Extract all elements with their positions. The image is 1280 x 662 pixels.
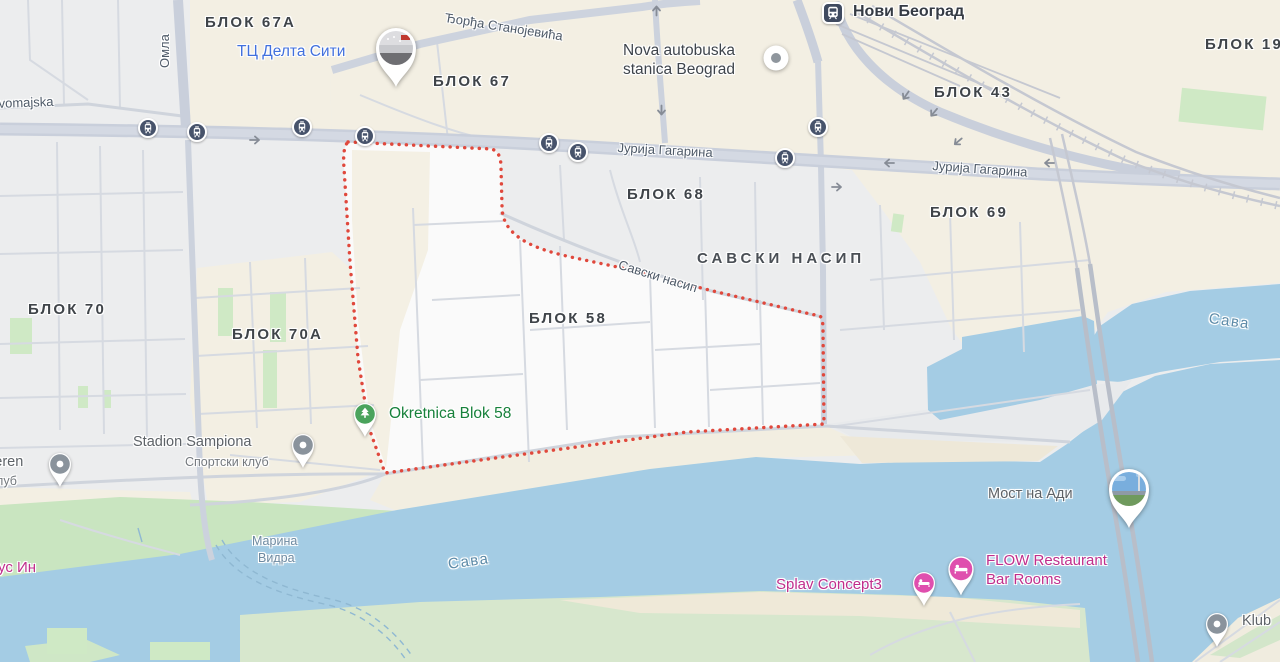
label-blok-43: БЛОК 43	[934, 84, 1012, 101]
bus-stop-icon[interactable]	[292, 117, 312, 137]
poi-bus-station-line2[interactable]: stanica Beograd	[623, 61, 735, 79]
label-blok-70: БЛОК 70	[28, 301, 106, 318]
bus-station-dot-icon[interactable]	[762, 44, 790, 72]
road-arrow	[831, 182, 844, 192]
label-blok-19: БЛОК 19	[1205, 36, 1280, 53]
street-omladinskih: Омла	[157, 34, 172, 68]
bus-stop-icon[interactable]	[355, 126, 375, 146]
street-savski-nasip: Савски насип	[617, 257, 700, 295]
poi-most-na-adi[interactable]: Мост на Ади	[988, 486, 1073, 502]
poi-splav-concept3[interactable]: Splav Concept3	[776, 576, 882, 593]
bus-stop-icon[interactable]	[775, 148, 795, 168]
street-jurija-gagarina-1: Јурија Гагарина	[617, 140, 713, 160]
bus-stop-icon[interactable]	[187, 122, 207, 142]
bus-stop-icon[interactable]	[568, 142, 588, 162]
road-arrow	[656, 105, 666, 118]
road-arrow	[651, 4, 661, 17]
label-blok-68: БЛОК 68	[627, 186, 705, 203]
label-blok-70a: БЛОК 70А	[232, 326, 323, 343]
bus-stop-icon[interactable]	[138, 118, 158, 138]
poi-novi-beograd-station[interactable]: Нови Београд	[853, 3, 964, 21]
road-arrow	[949, 134, 965, 150]
water-marina-vidra-2: Видра	[258, 551, 295, 565]
water-marina-vidra-1: Марина	[252, 534, 297, 548]
poi-flow-line2[interactable]: Bar Rooms	[986, 571, 1061, 588]
label-blok-58: БЛОК 58	[529, 310, 607, 327]
poi-stadion-sampiona[interactable]: Stadion Sampiona	[133, 434, 252, 450]
poi-klub[interactable]: Klub	[1242, 613, 1271, 629]
poi-stadion-sub: Спортски клуб	[185, 455, 269, 469]
splav-bed-pin[interactable]	[909, 568, 939, 608]
klub-pin[interactable]	[1202, 609, 1232, 649]
poi-teren-sub: а клуб	[0, 474, 17, 488]
most-na-adi-photo-pin[interactable]	[1103, 468, 1155, 530]
stadion-pin[interactable]	[288, 430, 318, 470]
poi-okretnica-blok-58[interactable]: Okretnica Blok 58	[389, 405, 511, 423]
bus-stop-icon[interactable]	[539, 133, 559, 153]
road-arrow	[897, 88, 913, 104]
street-prvomajska: rvomajska	[0, 94, 54, 111]
road-arrow	[249, 135, 262, 145]
road-arrow	[882, 158, 895, 168]
poi-flow-line1[interactable]: FLOW Restaurant	[986, 552, 1107, 569]
train-station-icon[interactable]	[822, 2, 844, 24]
road-arrow	[1042, 158, 1055, 168]
map-canvas[interactable]: БЛОК 67АБЛОК 67БЛОК 43БЛОК 19БЛОК 68БЛОК…	[0, 0, 1280, 662]
map-overlay: БЛОК 67АБЛОК 67БЛОК 43БЛОК 19БЛОК 68БЛОК…	[0, 0, 1280, 662]
poi-bus-station-line1[interactable]: Nova autobuska	[623, 42, 735, 60]
water-sava-arm: Сава	[1208, 310, 1251, 333]
poi-us-in[interactable]: ус Ин	[0, 559, 36, 576]
street-djordja-stanojevica: Ђорђа Станојевића	[444, 10, 564, 43]
delta-city-photo-pin[interactable]	[370, 27, 422, 89]
poi-delta-city[interactable]: ТЦ Делта Сити	[237, 43, 345, 61]
street-jurija-gagarina-2: Јурија Гагарина	[932, 158, 1028, 180]
flow-bed-pin[interactable]	[944, 552, 979, 598]
label-savski-nasip-area: САВСКИ НАСИП	[697, 250, 865, 267]
label-blok-67: БЛОК 67	[433, 73, 511, 90]
water-sava-main: Сава	[447, 550, 490, 573]
label-blok-69: БЛОК 69	[930, 204, 1008, 221]
label-blok-67a: БЛОК 67А	[205, 14, 296, 31]
road-arrow	[925, 105, 941, 121]
bus-stop-icon[interactable]	[808, 117, 828, 137]
poi-teren[interactable]: Teren	[0, 454, 23, 470]
teren-pin[interactable]	[45, 449, 75, 489]
okretnica-tree-pin[interactable]	[350, 399, 380, 439]
